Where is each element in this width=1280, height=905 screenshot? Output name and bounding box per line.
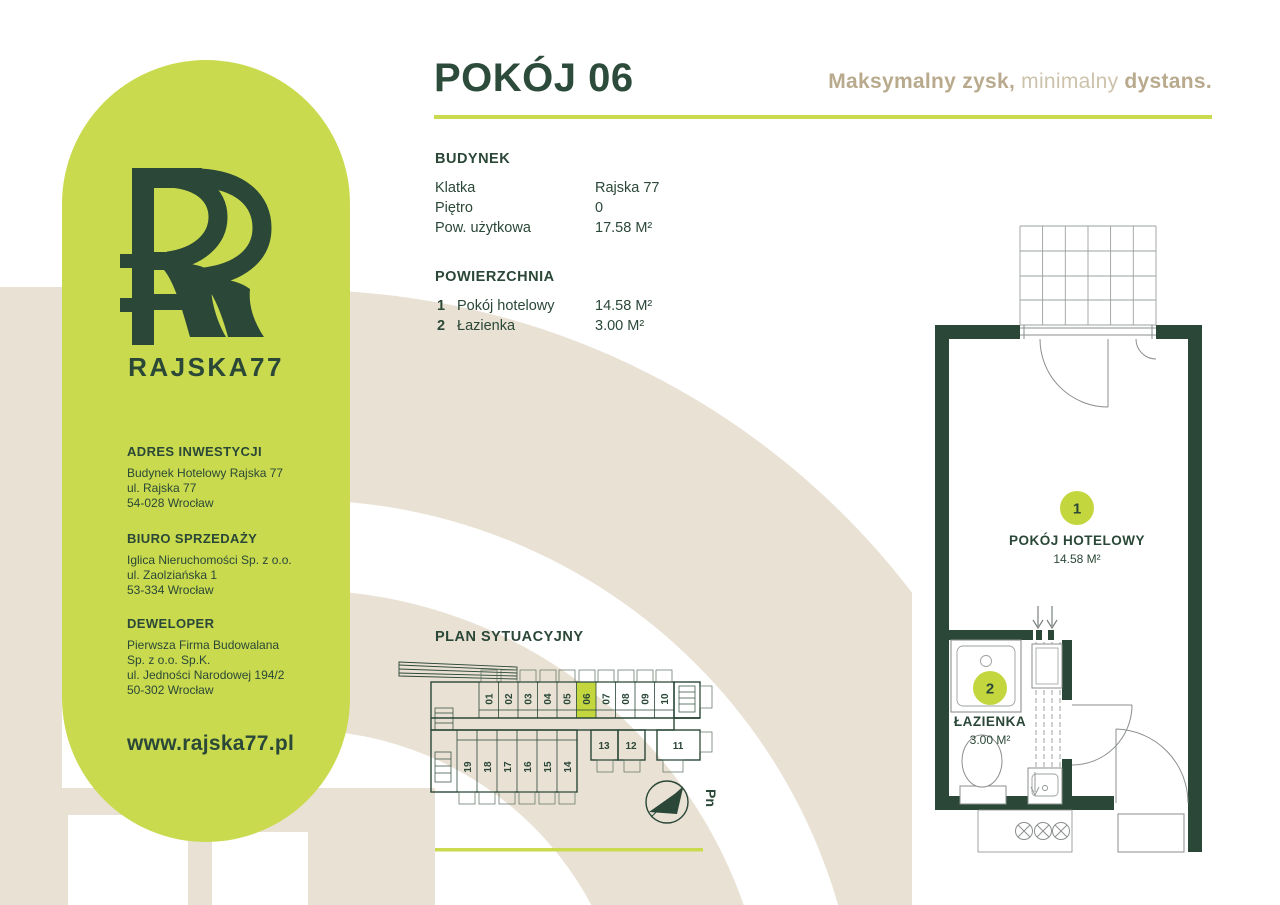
svg-text:08: 08	[621, 693, 632, 705]
compass-north-icon: Pn	[646, 781, 717, 823]
developer-line: Sp. z o.o. Sp.K.	[127, 653, 337, 668]
row-label: Pow. użytkowa	[435, 220, 531, 236]
svg-text:12: 12	[625, 741, 637, 752]
building-row: Pow. użytkowa 17.58 M²	[435, 220, 765, 236]
tagline-part1: Maksymalny zysk,	[828, 70, 1015, 93]
room1-name: POKÓJ HOTELOWY	[1009, 533, 1145, 548]
sink	[1028, 768, 1062, 804]
svg-text:17: 17	[503, 761, 514, 773]
developer-section: DEWELOPER Pierwsza Firma Budowalana Sp. …	[127, 616, 337, 698]
title-divider	[434, 115, 1212, 119]
address-line: Budynek Hotelowy Rajska 77	[127, 466, 337, 481]
svg-text:03: 03	[524, 693, 535, 705]
sales-office-section: BIURO SPRZEDAŻY Iglica Nieruchomości Sp.…	[127, 531, 337, 598]
bathroom-door	[1072, 705, 1132, 765]
row-value: 17.58 M²	[595, 220, 652, 236]
svg-text:1: 1	[1073, 501, 1081, 518]
area-row-number: 2	[437, 318, 445, 334]
svg-text:04: 04	[543, 693, 554, 705]
area-row-label: Pokój hotelowy	[457, 298, 555, 314]
utility-connections	[978, 810, 1072, 852]
room-marker-1: 1	[1060, 491, 1094, 525]
developer-line: Pierwsza Firma Budowalana	[127, 638, 337, 653]
room-marker-2: 2	[973, 671, 1007, 705]
svg-text:06: 06	[582, 693, 593, 705]
siteplan-divider	[435, 848, 703, 852]
svg-text:11: 11	[673, 741, 684, 752]
address-section: ADRES INWESTYCJI Budynek Hotelowy Rajska…	[127, 444, 337, 511]
svg-text:05: 05	[563, 693, 574, 705]
tagline-part2: minimalny	[1021, 70, 1118, 93]
sales-office-line: ul. Zaolziańska 1	[127, 568, 337, 583]
siteplan-canopy	[399, 662, 517, 679]
floor-plan: 1 POKÓJ HOTELOWY 14.58 M² 2 ŁAZIENKA 3.0…	[920, 218, 1240, 890]
developer-line: ul. Jedności Narodowej 194/2	[127, 668, 337, 683]
svg-text:09: 09	[641, 693, 652, 705]
brand-pill: RAJSKA77 ADRES INWESTYCJI Budynek Hotelo…	[62, 60, 350, 842]
sales-office-heading: BIURO SPRZEDAŻY	[127, 531, 337, 546]
svg-text:14: 14	[563, 761, 574, 773]
svg-text:07: 07	[602, 693, 613, 705]
site-plan: 01 02 03 04 05 06 07 08 09 10 13 12 11 1…	[395, 652, 717, 858]
svg-text:10: 10	[660, 693, 671, 705]
row-value: Rajska 77	[595, 180, 659, 196]
brochure-page: RAJSKA77 ADRES INWESTYCJI Budynek Hotelo…	[0, 0, 1280, 905]
washbasin	[1032, 644, 1062, 688]
svg-text:01: 01	[485, 693, 496, 705]
sales-office-line: 53-334 Wrocław	[127, 583, 337, 598]
area-row-value: 14.58 M²	[595, 298, 652, 314]
website-link[interactable]: www.rajska77.pl	[127, 732, 294, 756]
row-value: 0	[595, 200, 603, 216]
address-heading: ADRES INWESTYCJI	[127, 444, 337, 459]
building-row: Klatka Rajska 77	[435, 180, 765, 196]
tagline-part3: dystans.	[1124, 70, 1212, 93]
row-label: Klatka	[435, 180, 475, 196]
svg-text:15: 15	[543, 761, 554, 773]
siteplan-unit-numbers: 01 02 03 04 05 06 07 08 09 10 13 12 11 1…	[463, 693, 684, 773]
entry-arrows-icon	[1033, 606, 1057, 628]
developer-heading: DEWELOPER	[127, 616, 337, 631]
page-title: POKÓJ 06	[434, 56, 634, 101]
area-row-number: 1	[437, 298, 445, 314]
developer-line: 50-302 Wrocław	[127, 683, 337, 698]
building-heading: BUDYNEK	[435, 151, 510, 167]
address-line: 54-028 Wrocław	[127, 496, 337, 511]
entrance-door	[1116, 729, 1188, 852]
room2-name: ŁAZIENKA	[954, 714, 1026, 729]
svg-text:18: 18	[483, 761, 494, 773]
svg-text:2: 2	[986, 681, 994, 698]
svg-text:16: 16	[523, 761, 534, 773]
terrace-grid	[1020, 226, 1156, 325]
row-label: Piętro	[435, 200, 473, 216]
area-row-value: 3.00 M²	[595, 318, 644, 334]
svg-text:02: 02	[504, 693, 515, 705]
tagline: Maksymalny zysk,minimalnydystans.	[828, 70, 1212, 94]
area-heading: POWIERZCHNIA	[435, 269, 555, 285]
terrace-door	[1020, 325, 1156, 407]
area-row-label: Łazienka	[457, 318, 515, 334]
room2-area: 3.00 M²	[970, 733, 1011, 747]
rajska-logo-icon	[120, 160, 292, 346]
room1-area: 14.58 M²	[1053, 552, 1100, 566]
address-line: ul. Rajska 77	[127, 481, 337, 496]
siteplan-heading: PLAN SYTUACYJNY	[435, 629, 584, 645]
svg-text:13: 13	[598, 741, 610, 752]
brand-name: RAJSKA77	[62, 352, 350, 383]
svg-text:Pn: Pn	[703, 789, 717, 807]
building-row: Piętro 0	[435, 200, 765, 216]
sales-office-line: Iglica Nieruchomości Sp. z o.o.	[127, 553, 337, 568]
svg-text:19: 19	[463, 761, 474, 773]
